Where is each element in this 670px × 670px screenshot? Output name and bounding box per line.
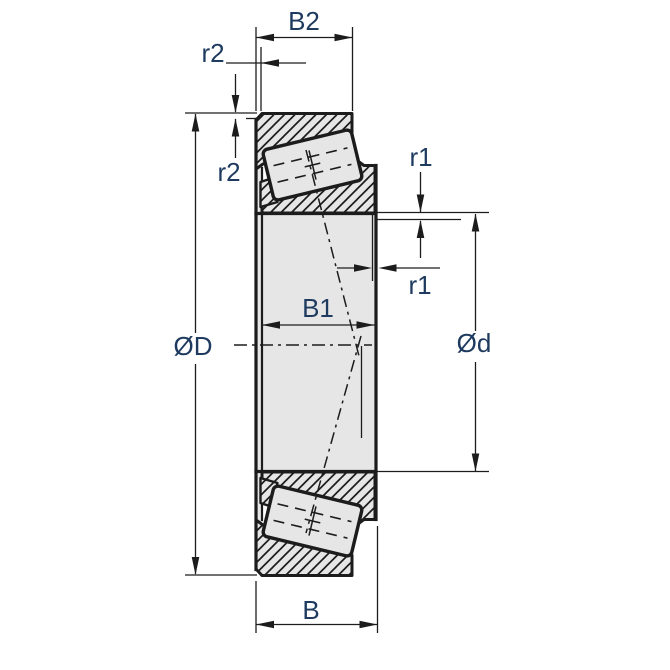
dim-label-bore-diameter: Ød	[457, 328, 492, 358]
dim-label-r2-width: r2	[201, 38, 224, 68]
dimension-r2-height: r2	[217, 74, 240, 187]
bearing-cross-section-diagram: B2 r2 r2 ØD Ød r1	[0, 0, 670, 670]
dimension-r2-width: r2	[201, 38, 306, 68]
dimension-B: B	[256, 595, 378, 628]
dimension-bore-diameter: Ød	[457, 214, 492, 472]
dim-label-r2-height: r2	[217, 157, 240, 187]
dimension-B2: B2	[256, 6, 353, 41]
dim-label-r1-width: r1	[408, 270, 431, 300]
dim-label-b1: B1	[302, 293, 334, 323]
dim-label-b2: B2	[288, 6, 320, 36]
dim-label-b: B	[302, 595, 319, 625]
dimension-r1-height: r1	[409, 142, 432, 258]
dimension-outer-diameter: ØD	[174, 114, 213, 576]
dim-label-outer-diameter: ØD	[174, 331, 213, 361]
bore-region	[256, 213, 375, 472]
dim-label-r1-height: r1	[409, 142, 432, 172]
